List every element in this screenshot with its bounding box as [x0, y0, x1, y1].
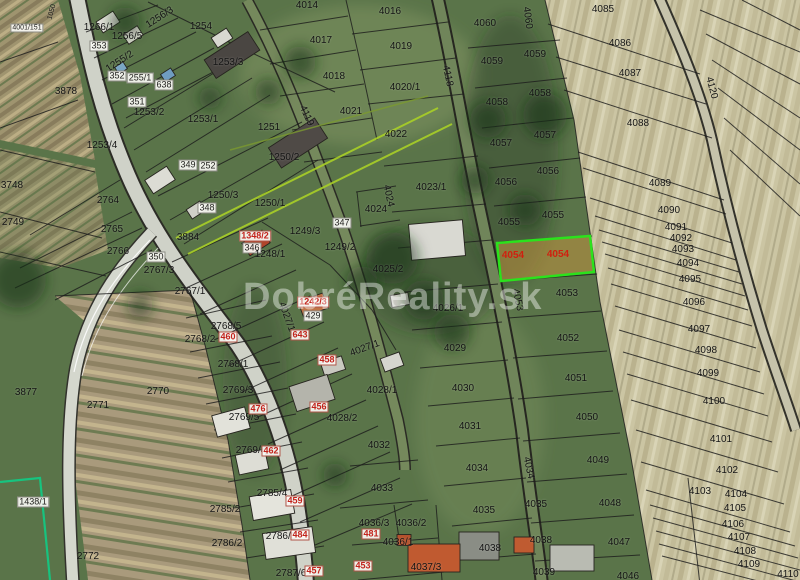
- tree-canopy: [509, 194, 541, 226]
- tree-canopy: [404, 280, 444, 320]
- tree-canopy: [323, 463, 347, 487]
- cadastral-map[interactable]: 10504001/1511266/11256/31256/53531254125…: [0, 0, 800, 580]
- tree-canopy: [284, 46, 316, 78]
- tree-canopy: [127, 292, 153, 318]
- building: [397, 535, 411, 546]
- tree-canopy: [199, 87, 221, 109]
- tree-canopy: [470, 102, 506, 138]
- tree-canopy: [255, 79, 281, 105]
- building: [408, 544, 460, 572]
- tree-canopy: [346, 266, 378, 298]
- tree-canopy: [523, 93, 567, 137]
- tree-canopy: [110, 7, 140, 37]
- building: [514, 537, 534, 553]
- map-terrain: [0, 0, 800, 580]
- highlight-parcel-4054[interactable]: [497, 236, 594, 281]
- building: [459, 532, 499, 560]
- tree-canopy: [461, 166, 489, 194]
- tree-canopy: [434, 314, 470, 350]
- building: [550, 545, 594, 571]
